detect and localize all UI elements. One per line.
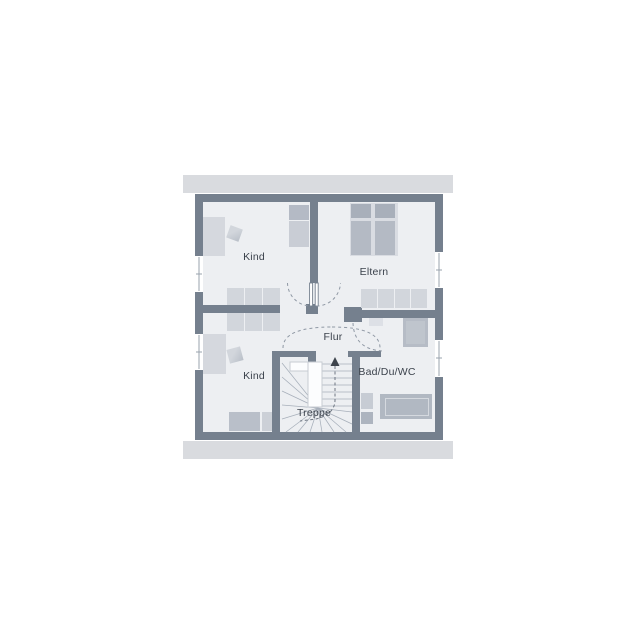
room-label-kind-2: Kind	[243, 370, 265, 382]
roof-band-top	[183, 175, 453, 193]
wall-outer-bottom	[195, 432, 443, 440]
bed-kind-1	[203, 217, 225, 256]
shelf-kind-1	[227, 288, 280, 305]
wardrobe-eltern	[361, 289, 427, 308]
window-kind-1	[195, 256, 203, 292]
sink	[361, 393, 373, 409]
window-kind-2	[195, 334, 203, 370]
wall-flur-stub-left	[308, 351, 316, 362]
roof-band-bottom	[183, 441, 453, 459]
dresser-kind-2	[229, 412, 260, 431]
wall-outer-left	[195, 194, 203, 440]
mattress-left	[351, 221, 371, 255]
dresser-kind-2-side	[262, 412, 272, 431]
room-label-eltern: Eltern	[360, 266, 389, 278]
wardrobe-kind-1-bottom	[289, 221, 309, 247]
wall-kind-kind	[195, 305, 280, 313]
floor-plan: Kind Eltern Kind Flur Treppe Bad/Du/WC	[0, 0, 636, 636]
pillow-left	[351, 204, 371, 218]
window-eltern	[435, 252, 443, 288]
toilet	[361, 412, 373, 424]
shelf-kind-2	[227, 313, 280, 331]
wardrobe-kind-1-top	[289, 205, 309, 220]
bathtub-inner	[385, 398, 429, 416]
shower-tray	[406, 321, 425, 344]
room-label-kind-1: Kind	[243, 251, 265, 263]
mattress-right	[375, 221, 395, 255]
bed-kind-2	[203, 334, 226, 374]
wall-center-stub	[306, 304, 318, 314]
wall-eltern-bad	[352, 310, 443, 318]
wall-outer-top	[195, 194, 443, 202]
room-label-bad: Bad/Du/WC	[358, 366, 415, 378]
wall-kind-stairs	[272, 351, 280, 432]
room-label-treppe: Treppe	[297, 407, 331, 419]
wc-cistern	[369, 318, 383, 326]
wall-kind-eltern	[310, 202, 318, 283]
window-bad	[435, 340, 443, 377]
pillow-right	[375, 204, 395, 218]
wall-stairs-bad	[352, 351, 360, 432]
room-label-flur: Flur	[324, 331, 343, 343]
